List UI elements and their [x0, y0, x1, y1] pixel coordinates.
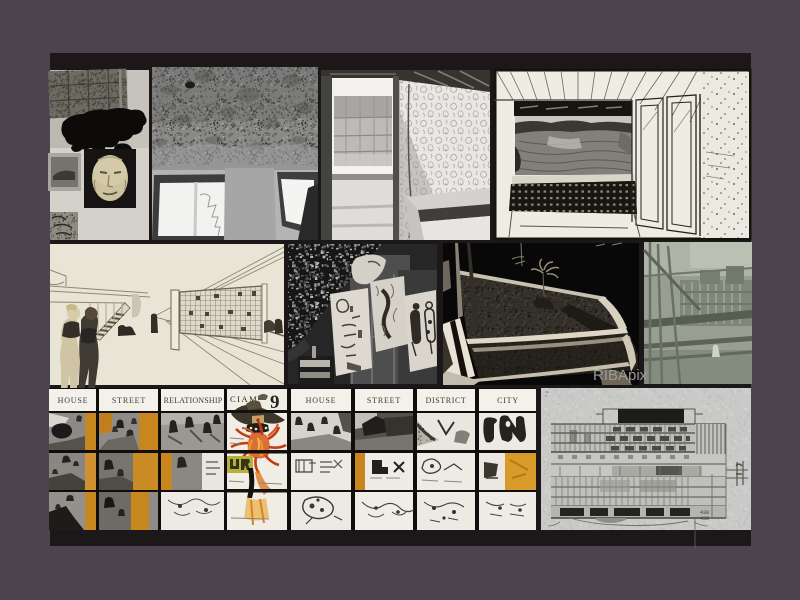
svg-text:9: 9 — [270, 392, 280, 413]
svg-text:HOUSE: HOUSE — [58, 396, 89, 405]
svg-text:RIBApix: RIBApix — [593, 367, 648, 384]
svg-text:STREET: STREET — [367, 396, 401, 405]
svg-text:439: 439 — [700, 516, 709, 522]
svg-text:STREET: STREET — [112, 396, 146, 405]
svg-text:HOUSE: HOUSE — [306, 396, 337, 405]
svg-text:CITY: CITY — [497, 396, 519, 405]
svg-text:RELATIONSHIP: RELATIONSHIP — [164, 396, 223, 405]
svg-text:DISTRICT: DISTRICT — [426, 396, 467, 405]
